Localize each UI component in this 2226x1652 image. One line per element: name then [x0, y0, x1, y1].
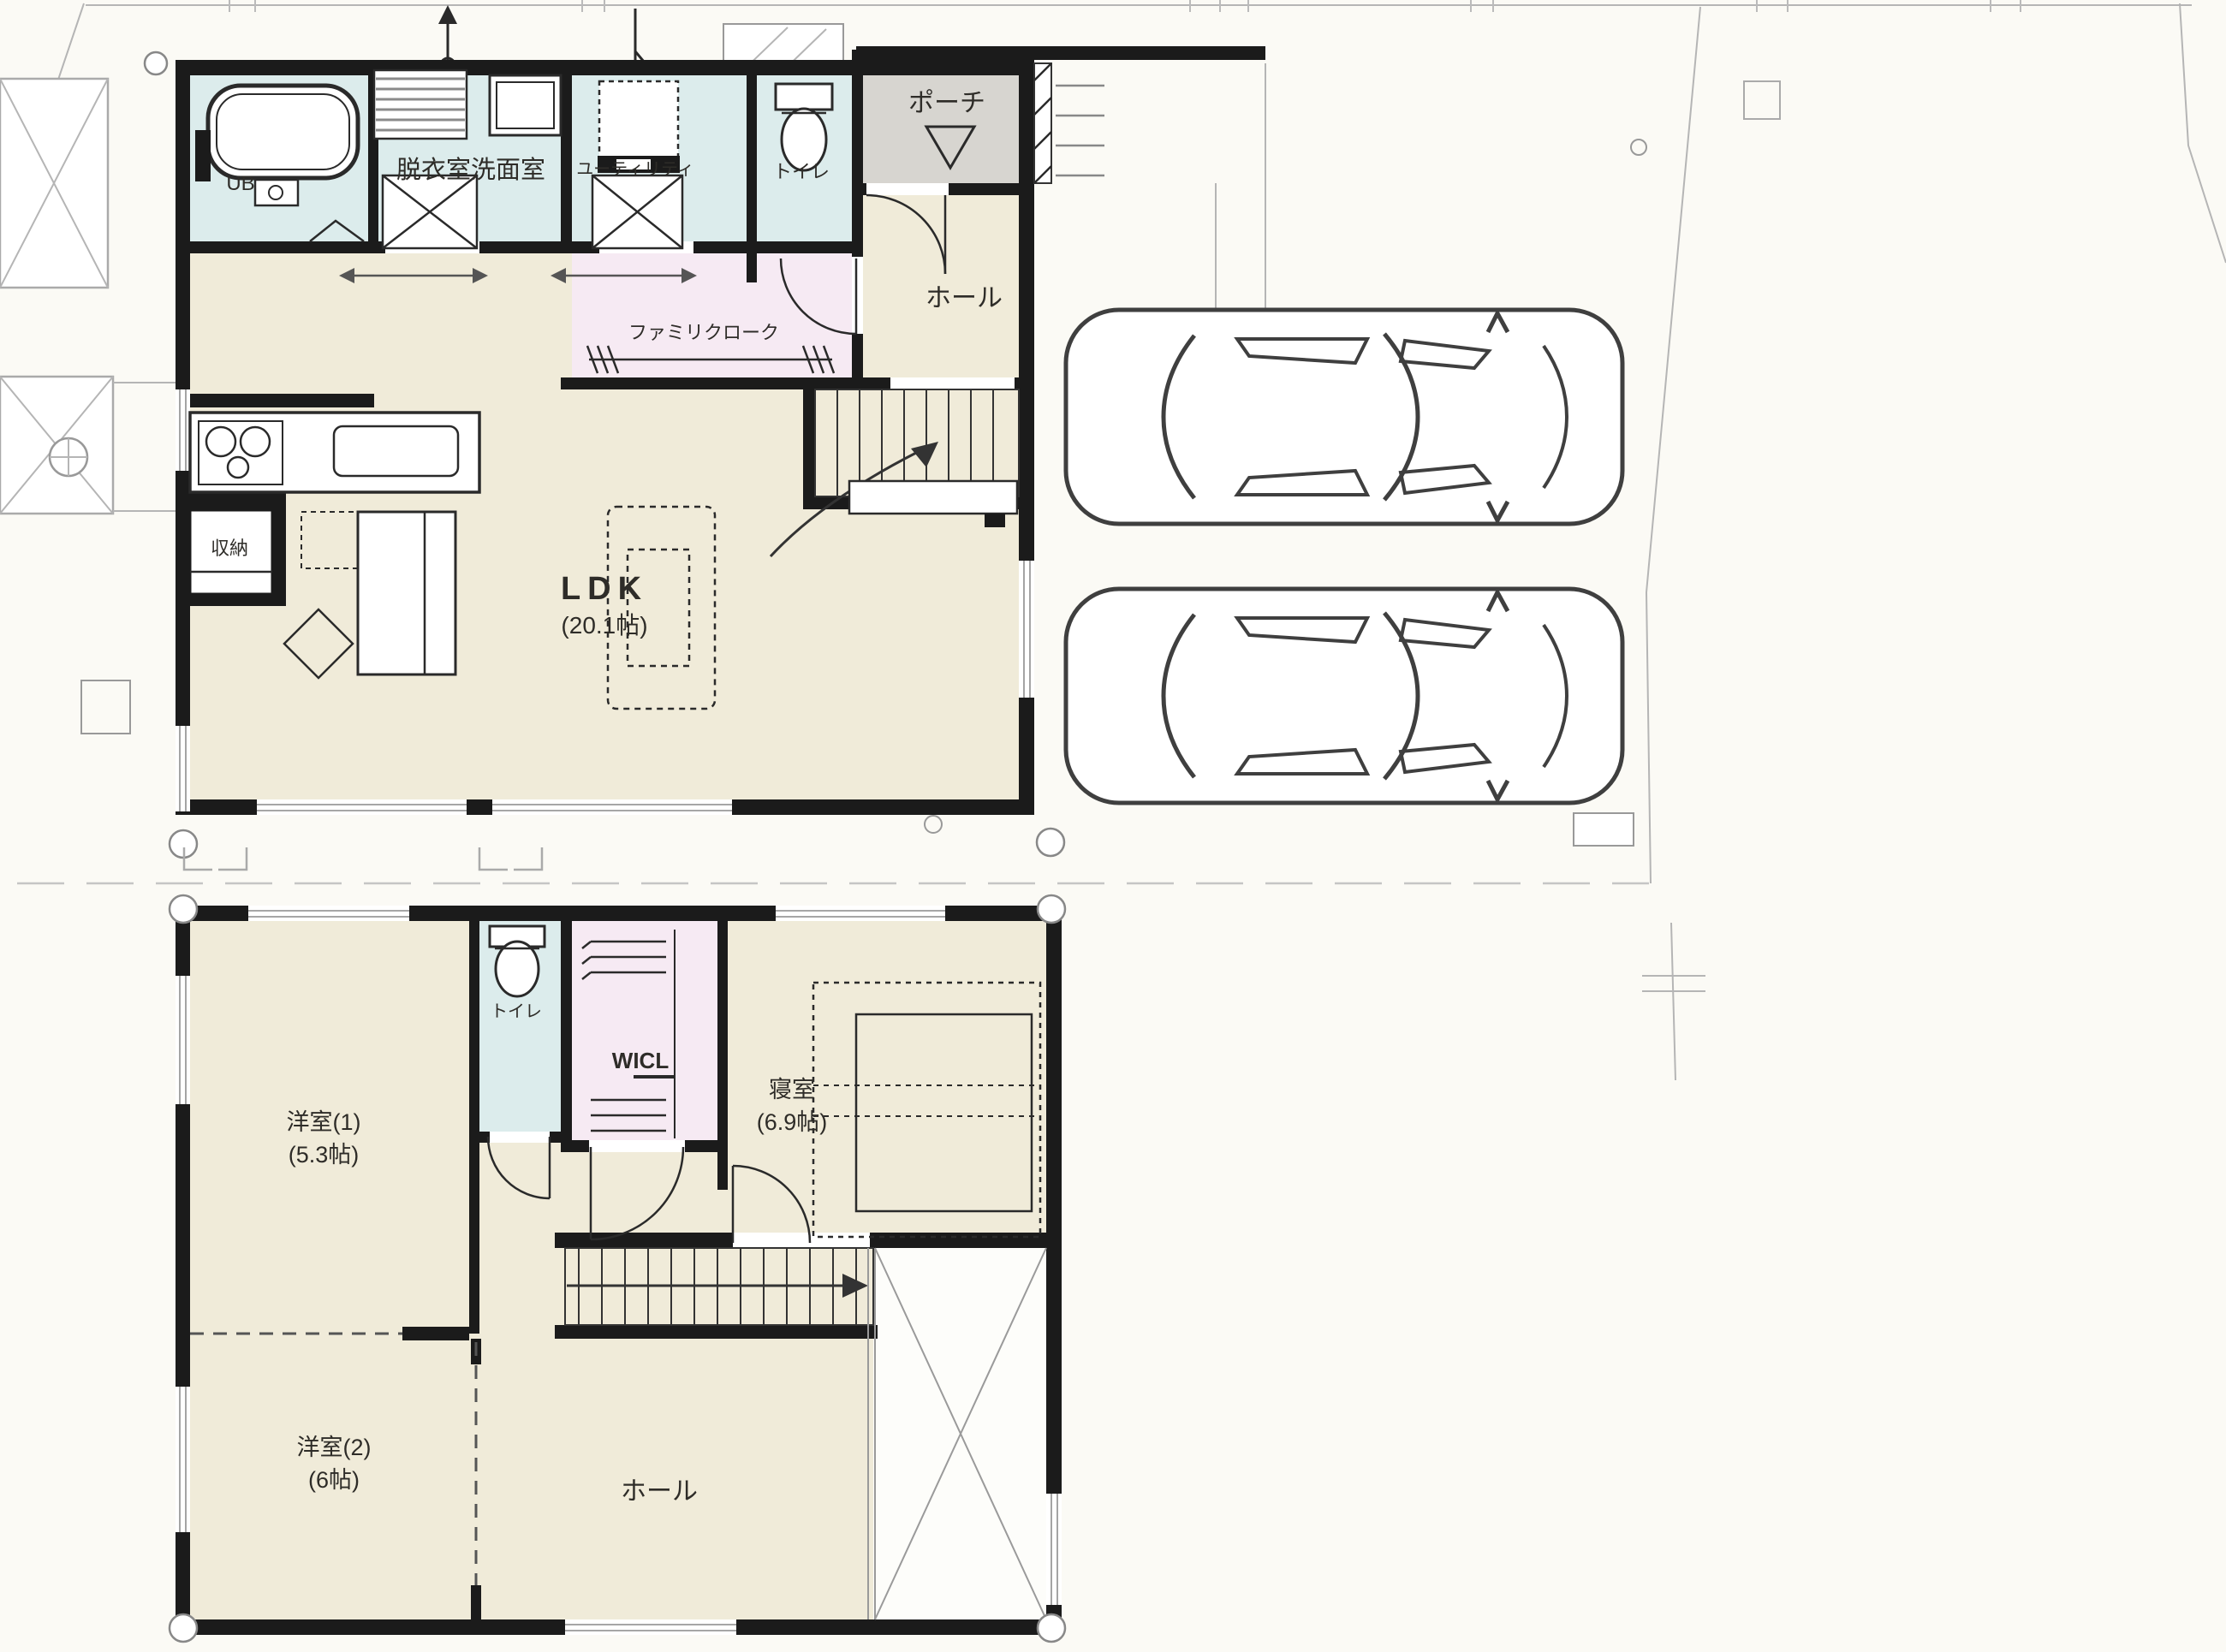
- kitchen-counter-icon: [190, 413, 479, 492]
- site-structure-x-box-1: [0, 79, 108, 288]
- washroom-cabinet-icon: [383, 175, 477, 248]
- porch-steps-icon: [1056, 86, 1104, 175]
- washer-pan-icon: [374, 70, 467, 139]
- corner-post-marker: [1037, 829, 1064, 856]
- utility-cabinet-icon: [592, 175, 682, 248]
- porch-label: ポーチ: [908, 89, 985, 117]
- toilet1-label: トイレ: [773, 161, 830, 182]
- far-right-site-line: [2180, 3, 2226, 263]
- bedroom-size-label: (6.9帖): [757, 1109, 828, 1135]
- entrance-pillar: [1034, 63, 1051, 183]
- ldk-label: LDK: [561, 571, 648, 607]
- corner-post-marker: [170, 895, 197, 923]
- utility-label: ユーティリティ: [576, 160, 694, 179]
- ldk-size-label: (20.1帖): [561, 612, 647, 639]
- corner-post-marker: [1038, 895, 1065, 923]
- wicl-label: WICL: [612, 1048, 670, 1073]
- car-2: [1066, 589, 1622, 803]
- western2-size-label: (6帖): [308, 1467, 360, 1493]
- corner-post-marker: [170, 1614, 197, 1642]
- parking-area: [1066, 310, 1622, 803]
- corner-post-marker: [1038, 1614, 1065, 1642]
- porch-area: [856, 63, 1034, 183]
- western1-label: 洋室(1): [287, 1109, 361, 1135]
- hall1-label: ホール: [926, 284, 1003, 312]
- storage-label: 収納: [211, 538, 248, 559]
- washroom-label: 脱衣室洗面室: [396, 156, 545, 184]
- floor-plan-drawing: UB 脱衣室洗面室 ユーティリティ トイレ ポーチ ホール ファミリクローク L…: [0, 0, 2226, 1652]
- hall2-label: ホール: [621, 1477, 698, 1506]
- car-1: [1066, 310, 1622, 524]
- manhole-icon: [50, 438, 87, 476]
- bath-label: UB: [226, 172, 254, 195]
- western2-label: 洋室(2): [297, 1435, 372, 1460]
- utility-appliance-icon: [598, 81, 680, 173]
- wicl-room: [572, 921, 717, 1151]
- family-closet-label: ファミリクローク: [628, 322, 779, 343]
- site-structure-x-box-2: [0, 377, 176, 514]
- bedroom-label: 寝室: [769, 1077, 815, 1102]
- western1-size-label: (5.3帖): [289, 1142, 360, 1168]
- floor-plan-page: UB 脱衣室洗面室 ユーティリティ トイレ ポーチ ホール ファミリクローク L…: [0, 0, 2226, 1652]
- terrace-marks: [184, 847, 542, 870]
- outdoor-unit-icon: [81, 680, 130, 734]
- toilet2-label: トイレ: [491, 1002, 542, 1021]
- right-site-line: [1646, 7, 1700, 883]
- washroom-window-icon: [490, 75, 561, 135]
- corner-post-marker: [145, 52, 167, 74]
- floor2-plan: 洋室(1) (5.3帖) トイレ WICL 寝室 (6.9帖) 洋室(2) (6…: [170, 895, 1065, 1642]
